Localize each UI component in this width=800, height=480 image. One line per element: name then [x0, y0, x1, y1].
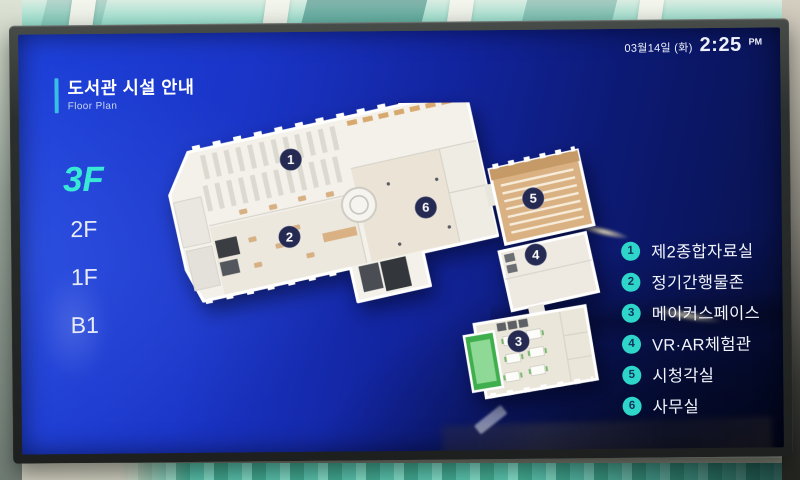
legend-number-badge: 4	[622, 334, 641, 353]
title-accent-bar	[54, 78, 58, 113]
svg-text:4: 4	[532, 247, 540, 262]
marker-6[interactable]: 6	[415, 196, 437, 218]
legend-number-badge: 6	[623, 396, 642, 415]
svg-text:5: 5	[530, 191, 537, 206]
floor-plan-map[interactable]: 1 2 3 4 5	[161, 101, 626, 449]
svg-text:6: 6	[422, 200, 429, 215]
marker-2[interactable]: 2	[278, 226, 300, 248]
legend: 1 제2종합자료실 2 정기간행물존 3 메이커스페이스 4 VR·AR체험관 …	[621, 238, 761, 418]
svg-text:2: 2	[286, 229, 293, 244]
statusbar: 03월14일 (화) 2:25 PM	[624, 34, 762, 58]
legend-label: 시청각실	[652, 362, 714, 387]
legend-item-2: 2 정기간행물존	[621, 269, 760, 294]
floor-nav-b1[interactable]: B1	[71, 312, 99, 339]
marker-5[interactable]: 5	[522, 187, 544, 209]
signage-tv-frame: 03월14일 (화) 2:25 PM 도서관 시설 안내 Floor Plan …	[9, 18, 793, 463]
floor-plan-svg: 1 2 3 4 5	[161, 101, 626, 449]
marker-4[interactable]: 4	[525, 243, 547, 265]
legend-label: VR·AR체험관	[652, 331, 752, 356]
legend-number-badge: 1	[621, 241, 640, 260]
svg-text:1: 1	[287, 152, 294, 167]
legend-item-1: 1 제2종합자료실	[621, 238, 760, 263]
legend-label: 사무실	[652, 393, 699, 417]
legend-item-6: 6 사무실	[622, 393, 761, 418]
legend-number-badge: 2	[621, 272, 640, 291]
page-title: 도서관 시설 안내	[67, 77, 194, 98]
date-text: 03월14일 (화)	[624, 39, 692, 56]
legend-item-4: 4 VR·AR체험관	[622, 331, 761, 356]
legend-number-badge: 3	[622, 303, 641, 322]
floor-nav-3f[interactable]: 3F	[63, 160, 104, 200]
legend-item-3: 3 메이커스페이스	[622, 300, 761, 325]
marker-3[interactable]: 3	[507, 330, 529, 352]
floor-nav: 3F 2F 1F B1	[45, 160, 123, 361]
floor-nav-2f[interactable]: 2F	[70, 216, 97, 243]
clock-meridiem: PM	[749, 37, 763, 47]
signage-screen: 03월14일 (화) 2:25 PM 도서관 시설 안내 Floor Plan …	[18, 27, 784, 454]
clock-time: 2:25	[699, 34, 741, 57]
legend-label: 제2종합자료실	[651, 238, 754, 263]
legend-item-5: 5 시청각실	[622, 362, 761, 387]
vr-ar-room	[499, 233, 598, 311]
makerspace-annex	[462, 306, 597, 400]
svg-text:3: 3	[515, 334, 522, 349]
legend-label: 정기간행물존	[651, 269, 744, 294]
floor-nav-1f[interactable]: 1F	[71, 264, 98, 291]
legend-number-badge: 5	[622, 365, 641, 384]
legend-label: 메이커스페이스	[652, 300, 761, 325]
marker-1[interactable]: 1	[280, 148, 302, 170]
